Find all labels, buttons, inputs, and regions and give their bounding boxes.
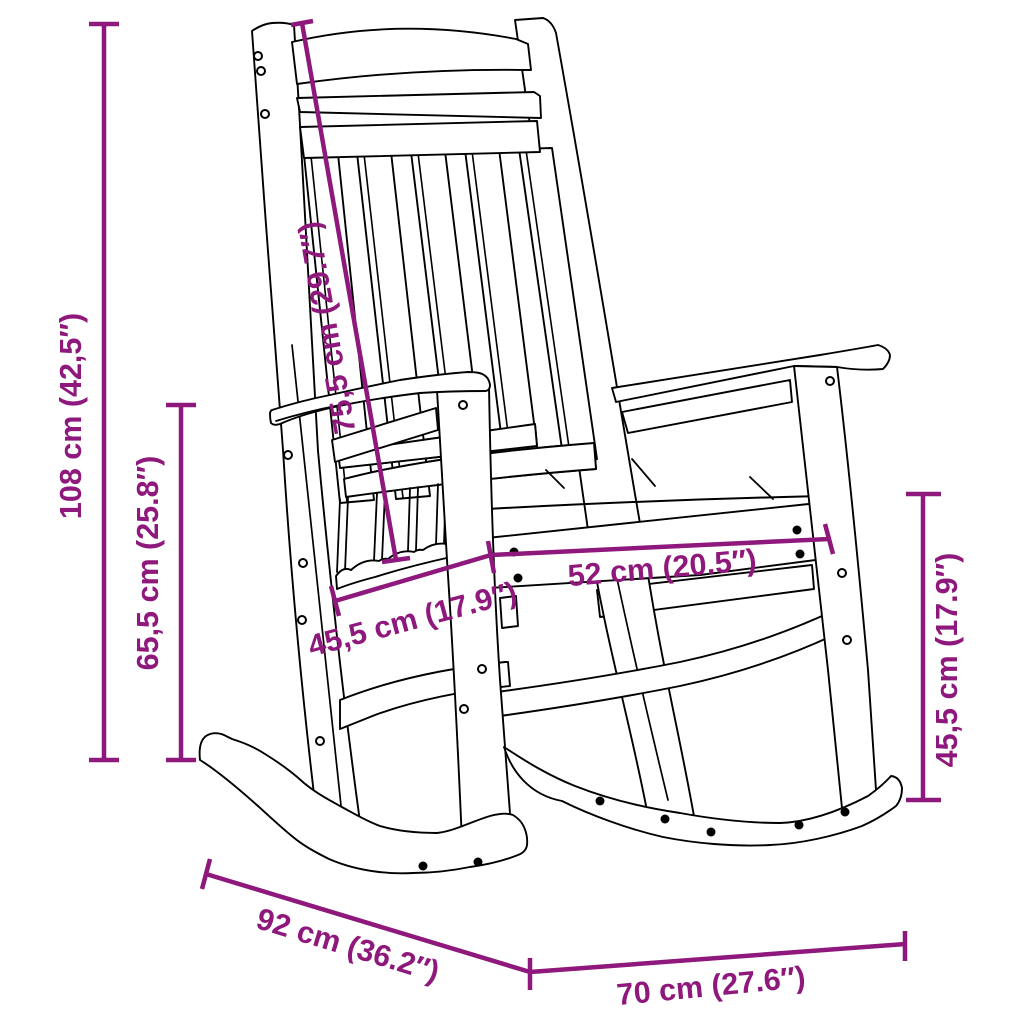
svg-text:65,5 cm (25.8″): 65,5 cm (25.8″) xyxy=(131,456,165,671)
svg-text:70 cm (27.6″): 70 cm (27.6″) xyxy=(615,960,807,1012)
svg-text:108 cm (42,5″): 108 cm (42,5″) xyxy=(54,313,88,519)
svg-text:45,5 cm (17.9″): 45,5 cm (17.9″) xyxy=(930,553,964,768)
